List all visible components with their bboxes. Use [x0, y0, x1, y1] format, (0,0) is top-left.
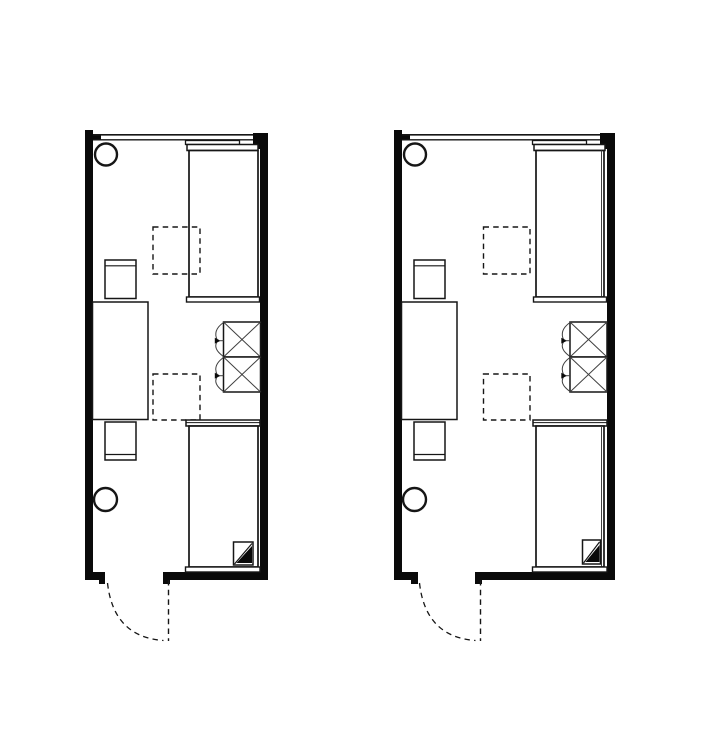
door-jamb-left: [99, 579, 105, 584]
door-swing-arc: [108, 583, 164, 641]
bottom-wall-right: [475, 572, 615, 580]
door-swing-arc: [420, 583, 476, 641]
bed-bottom-footboard: [533, 567, 608, 572]
bed-bottom-footboard: [186, 567, 261, 572]
desk: [93, 302, 149, 420]
bed-top-footboard: [534, 297, 607, 302]
bottom-wall-right: [163, 572, 268, 580]
floor-plan-svg: [0, 0, 714, 737]
bed-top-body: [189, 151, 258, 298]
bed-top-headboard: [534, 145, 605, 151]
bed-top-footboard: [187, 297, 260, 302]
dashed-marker-bottom: [153, 374, 200, 420]
page: [0, 0, 714, 737]
fixture-circle-top: [95, 144, 117, 166]
dashed-marker-top: [484, 227, 531, 274]
bed-top-body: [536, 151, 604, 298]
bottom-wall-left: [394, 572, 418, 580]
door-jamb-left: [411, 579, 418, 584]
bed-top-headboard: [187, 145, 258, 151]
fixture-circle-top: [404, 144, 426, 166]
fixture-circle-bottom: [94, 488, 117, 511]
desk: [402, 302, 458, 420]
bottom-wall-left: [85, 572, 105, 580]
room-plan-left: [85, 130, 268, 641]
right-wall: [607, 133, 615, 580]
fixture-circle-bottom: [403, 488, 426, 511]
room-plan-right: [394, 130, 615, 641]
dashed-marker-bottom: [484, 374, 531, 420]
